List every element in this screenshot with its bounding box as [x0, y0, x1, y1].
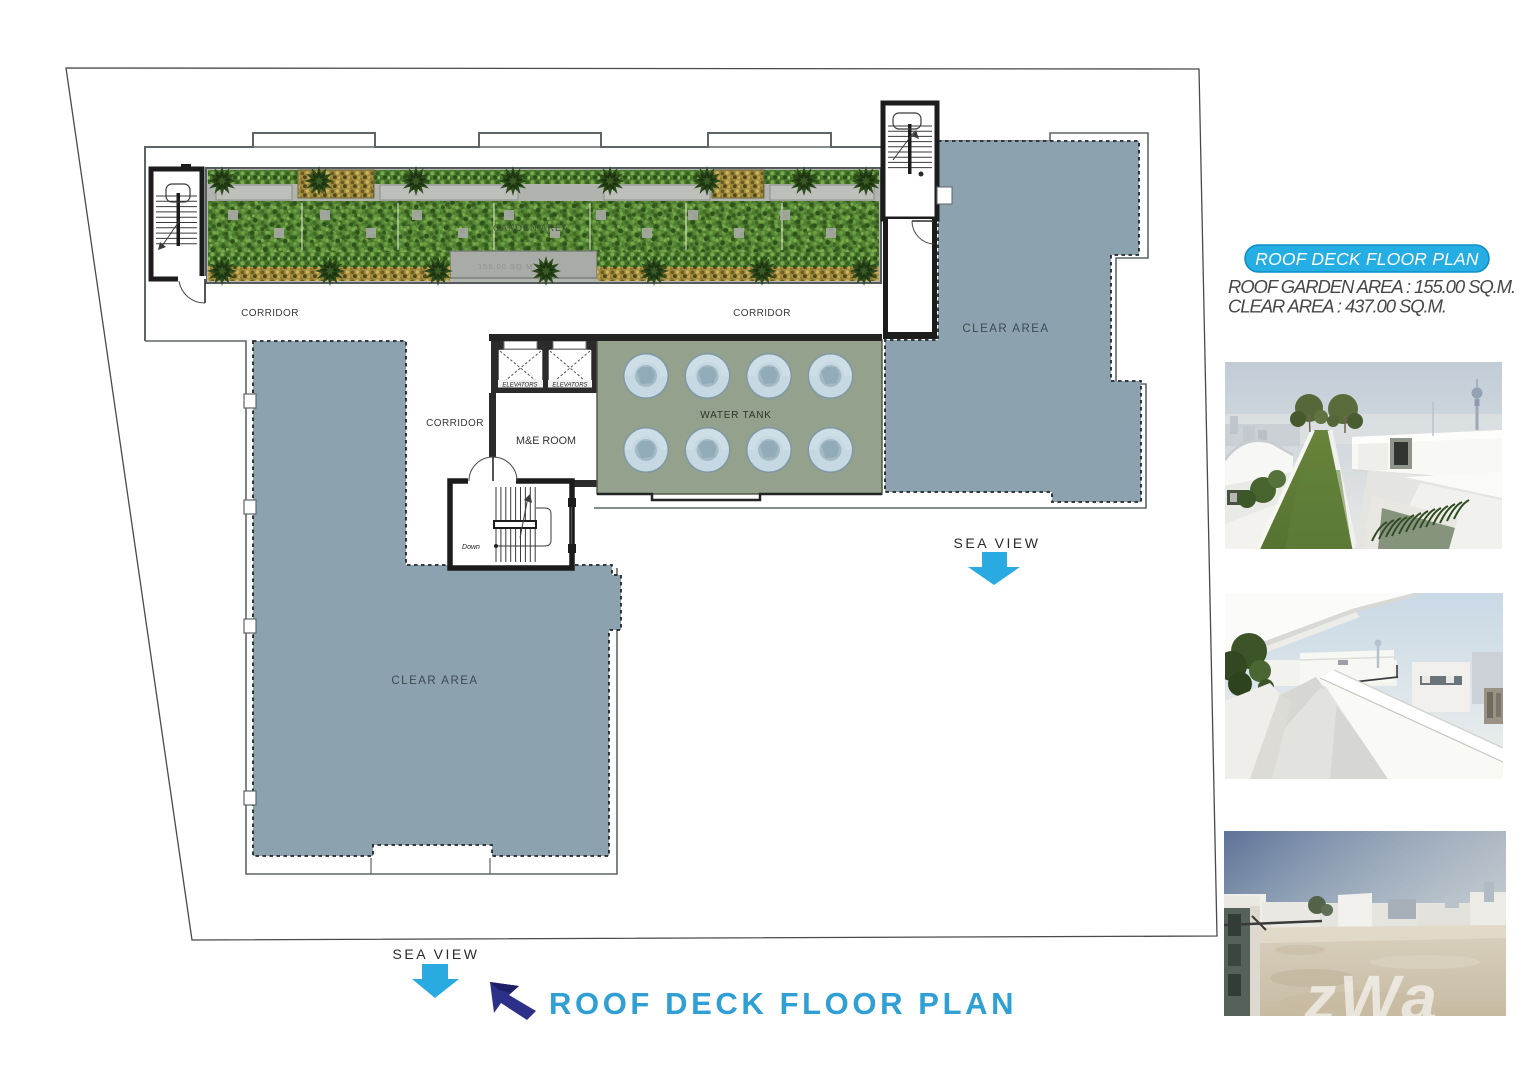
svg-text:zWa: zWa — [1303, 962, 1440, 1034]
svg-text:GARDEN AREA: GARDEN AREA — [493, 223, 569, 233]
svg-text:ELEVATORS: ELEVATORS — [502, 383, 537, 389]
svg-text:CORRIDOR: CORRIDOR — [241, 308, 299, 319]
svg-text:ROOF DECK FLOOR PLAN: ROOF DECK FLOOR PLAN — [549, 986, 1017, 1021]
svg-text:M&E ROOM: M&E ROOM — [516, 435, 576, 447]
svg-text:CORRIDOR: CORRIDOR — [426, 418, 484, 429]
svg-text:CLEAR AREA: CLEAR AREA — [391, 675, 478, 687]
svg-text:155.00 SQ.M.: 155.00 SQ.M. — [478, 262, 536, 271]
svg-text:CLEAR AREA: CLEAR AREA — [962, 323, 1049, 335]
svg-text:CLEAR AREA : 437.00 SQ.M.: CLEAR AREA : 437.00 SQ.M. — [1228, 296, 1446, 317]
svg-text:SEA VIEW: SEA VIEW — [393, 946, 480, 962]
svg-text:CORRIDOR: CORRIDOR — [733, 308, 791, 319]
svg-text:SEA VIEW: SEA VIEW — [954, 535, 1041, 551]
svg-text:Down: Down — [462, 544, 480, 551]
svg-text:ELEVATORS: ELEVATORS — [552, 383, 587, 389]
svg-text:ROOF GARDEN AREA : 155.00 SQ.M: ROOF GARDEN AREA : 155.00 SQ.M. — [1228, 276, 1515, 297]
svg-text:WATER TANK: WATER TANK — [700, 410, 772, 421]
svg-text:ROOF DECK FLOOR PLAN: ROOF DECK FLOOR PLAN — [1255, 249, 1479, 269]
